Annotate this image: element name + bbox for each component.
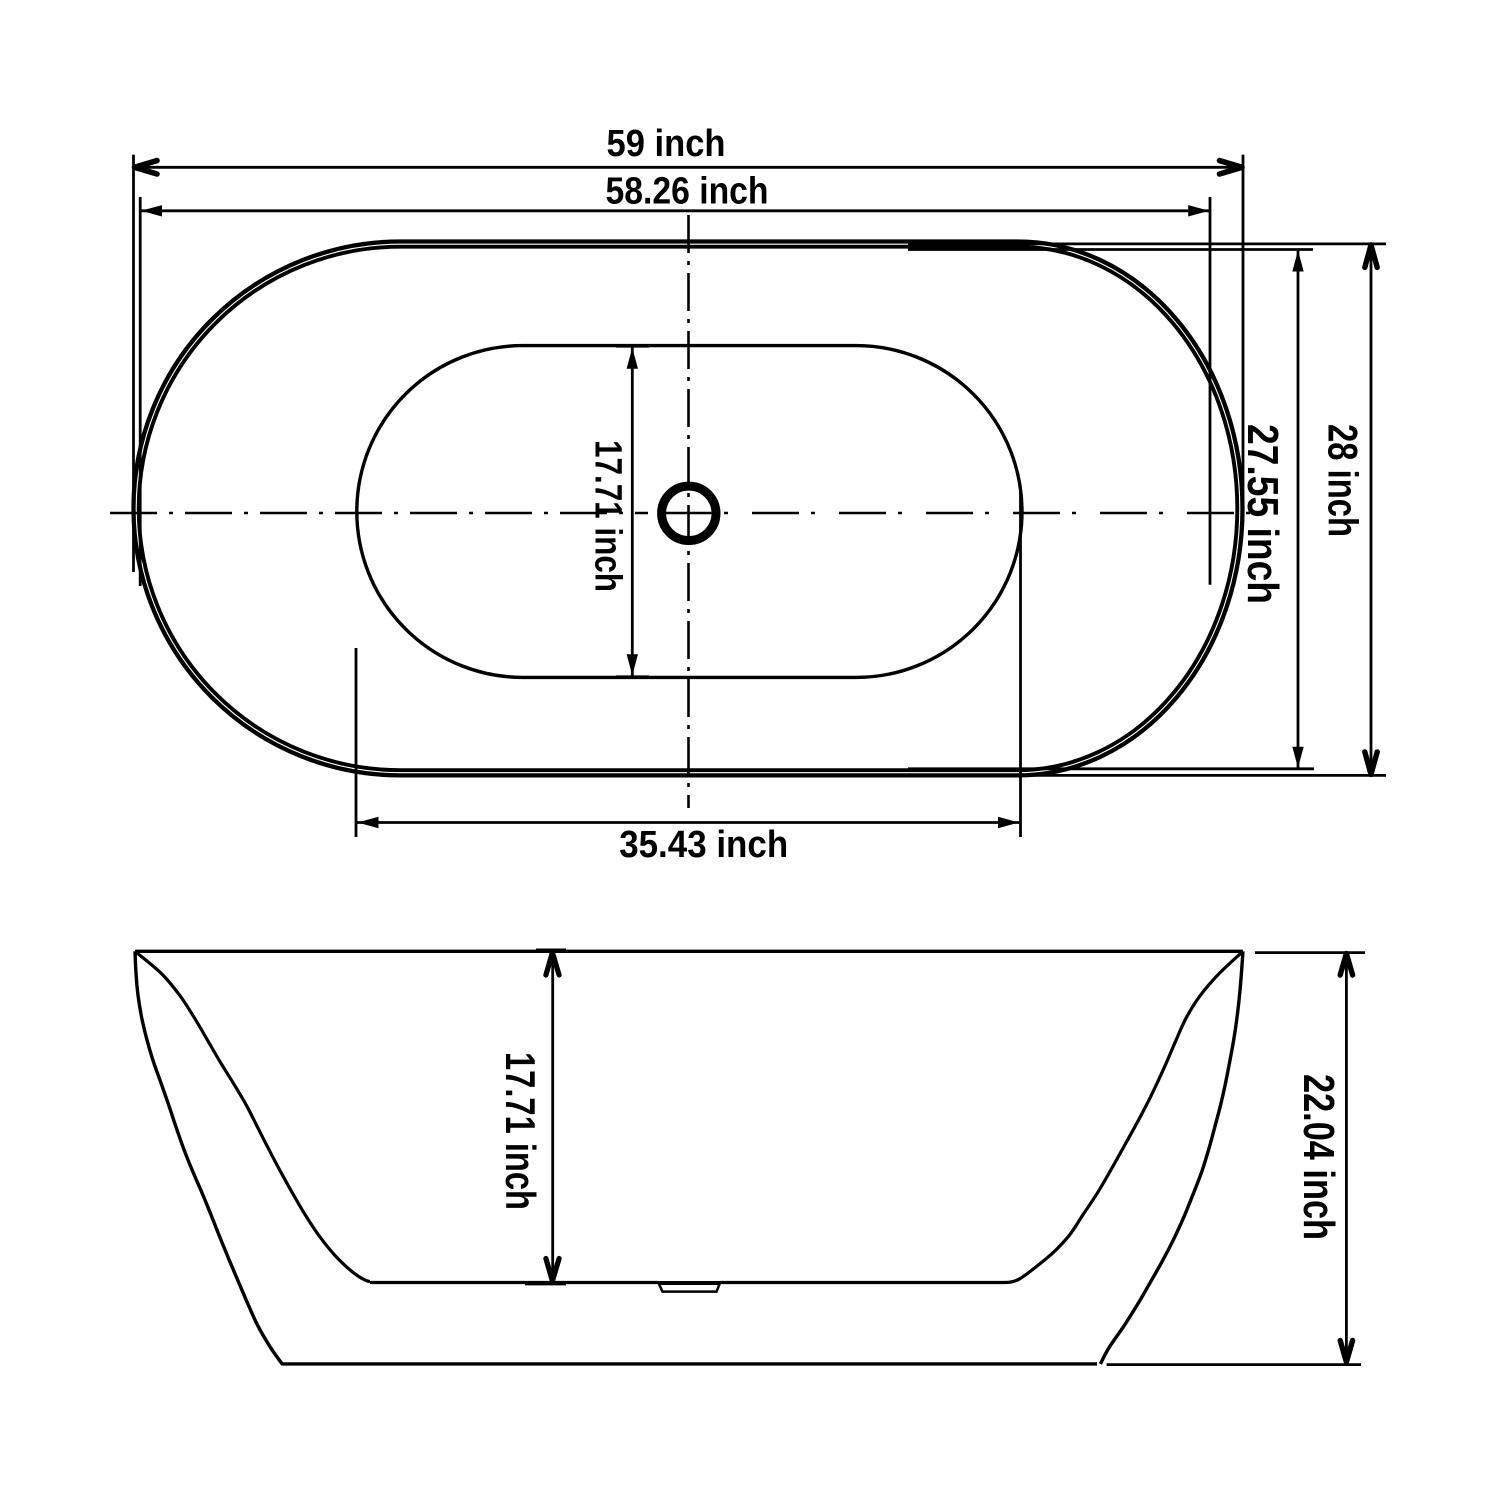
svg-text:58.26 inch: 58.26 inch <box>606 171 769 213</box>
svg-text:17.71 inch: 17.71 inch <box>497 1052 544 1210</box>
svg-text:35.43 inch: 35.43 inch <box>619 824 788 866</box>
svg-text:27.55 inch: 27.55 inch <box>1238 424 1287 604</box>
svg-text:28 inch: 28 inch <box>1320 424 1367 537</box>
svg-text:59 inch: 59 inch <box>607 123 726 165</box>
svg-text:22.04 inch: 22.04 inch <box>1294 1074 1343 1240</box>
svg-text:17.71 inch: 17.71 inch <box>587 440 629 592</box>
